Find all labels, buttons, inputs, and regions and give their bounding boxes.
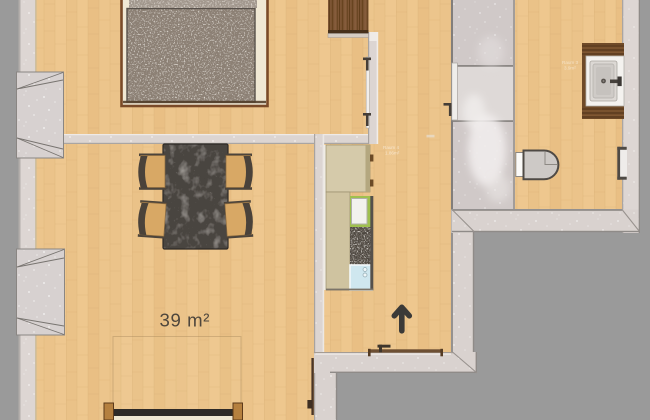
svg-text:Raum 3: Raum 3 xyxy=(562,60,579,65)
svg-text:Raum 4: Raum 4 xyxy=(383,145,400,150)
svg-text:3.9m²: 3.9m² xyxy=(564,66,576,71)
svg-text:39 m²: 39 m² xyxy=(160,310,211,331)
svg-text:1.86m²: 1.86m² xyxy=(385,151,400,156)
